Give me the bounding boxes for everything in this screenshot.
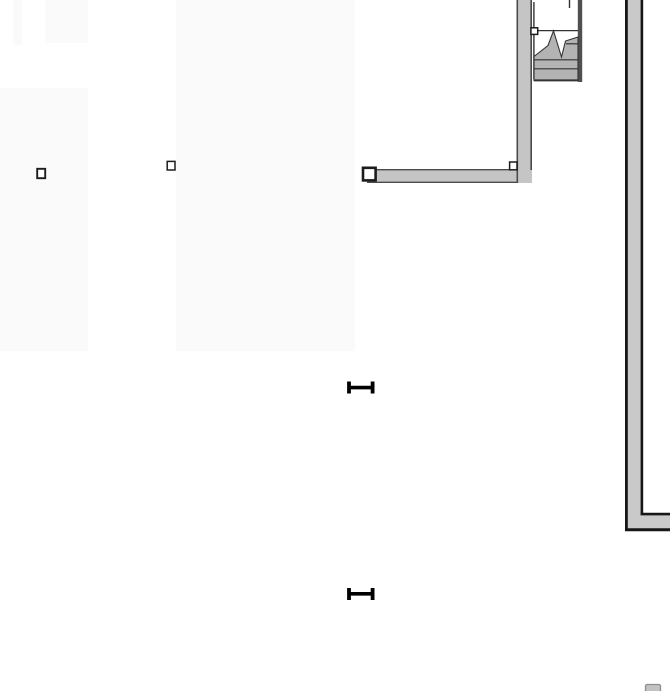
floorplan-canvas[interactable] xyxy=(0,0,670,691)
passage-markers[interactable] xyxy=(348,382,374,601)
furniture-item-partial[interactable] xyxy=(646,685,661,691)
staircase[interactable] xyxy=(534,0,582,82)
room-fill-2[interactable] xyxy=(45,0,88,43)
selection-grip-stair[interactable] xyxy=(531,28,538,35)
floorplan-viewport xyxy=(0,0,670,691)
wall-vertical-fill[interactable] xyxy=(517,0,533,183)
room-areas[interactable] xyxy=(0,0,355,351)
selection-grip-wall-corner[interactable] xyxy=(510,162,517,170)
selection-grip-free-2[interactable] xyxy=(167,161,175,170)
stair-breakline-fill[interactable] xyxy=(534,31,578,81)
selection-grip-wall-left-end[interactable] xyxy=(363,168,376,181)
room-fill-1[interactable] xyxy=(13,0,22,45)
corner-wall-fill[interactable] xyxy=(627,0,670,529)
wall-horizontal-fill[interactable] xyxy=(367,169,532,183)
room-fill-3[interactable] xyxy=(0,88,88,351)
walls[interactable] xyxy=(367,0,670,531)
room-fill-4[interactable] xyxy=(176,0,355,351)
furniture[interactable] xyxy=(646,685,661,691)
selection-grip-free-1[interactable] xyxy=(37,169,45,178)
